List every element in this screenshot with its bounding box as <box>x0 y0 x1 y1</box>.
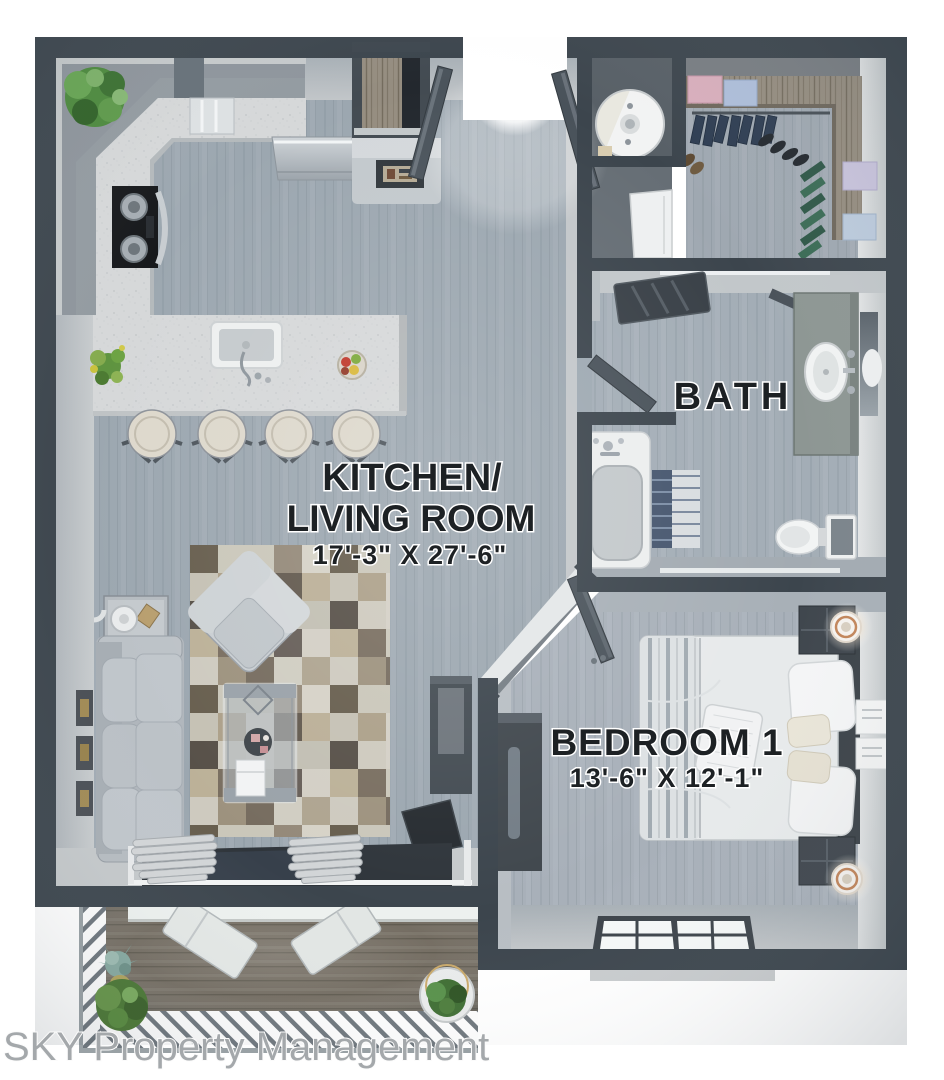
svg-text:KITCHEN/: KITCHEN/ <box>322 457 502 499</box>
svg-text:BEDROOM 1: BEDROOM 1 <box>550 722 783 763</box>
svg-text:LIVING ROOM: LIVING ROOM <box>287 498 536 539</box>
svg-text:17'-3" X 27'-6": 17'-3" X 27'-6" <box>313 540 508 570</box>
svg-text:SKY Property Management: SKY Property Management <box>3 1025 489 1069</box>
svg-text:BATH: BATH <box>674 376 793 418</box>
svg-text:13'-6" X 12'-1": 13'-6" X 12'-1" <box>570 763 765 793</box>
